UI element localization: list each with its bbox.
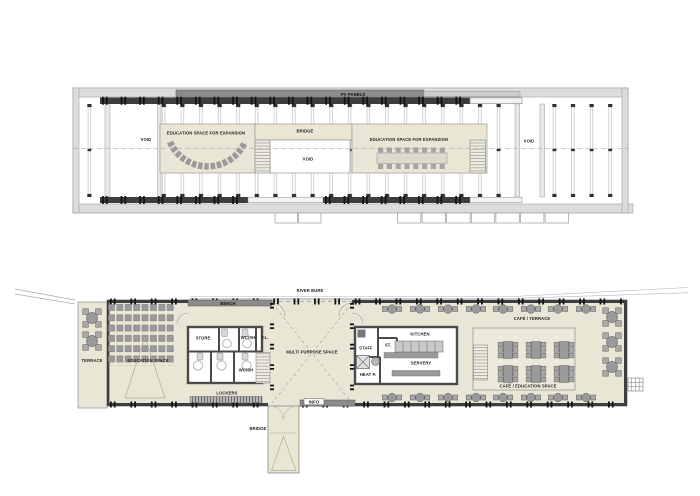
- upper-void-right-area: [519, 104, 540, 197]
- upper-void-left-area: [110, 104, 158, 197]
- st-label: ST.: [385, 343, 391, 348]
- bridge-label: BRIDGE: [250, 426, 267, 431]
- store-label: STORE: [196, 336, 211, 341]
- lower-floor-plan: RIVER BURE TERRACE BENCH EDUCATION SPACE: [15, 288, 688, 474]
- classroom-desks: [108, 304, 175, 366]
- cl-label: CL.: [261, 335, 268, 340]
- terrace-label: TERRACE: [82, 358, 103, 363]
- upper-bridge-label: BRIDGE: [297, 129, 314, 134]
- upper-void-right-label: VOID: [524, 139, 535, 144]
- upper-stair-left: [255, 140, 270, 173]
- wc-sh-top-label: WC/SH: [241, 335, 255, 340]
- floor-plan-sheet: PV PANELS: [0, 0, 700, 496]
- info-label: INFO: [309, 400, 320, 405]
- upper-education-right-label: EDUCATION SPACE FOR EXPANSION: [370, 137, 448, 142]
- bench-label: BENCH: [220, 301, 235, 306]
- upper-void-left-label: VOID: [141, 137, 152, 142]
- servery-label: SERVERY: [411, 361, 432, 366]
- upper-void-center-label: VOID: [303, 157, 314, 162]
- wc-sh-bottom-label: WC/SH: [239, 368, 253, 373]
- pv-panels-label: PV PANELS: [341, 92, 365, 97]
- river-steps: [628, 378, 643, 391]
- cafe-education-label: CAFÉ / EDUCATION SPACE: [500, 384, 557, 389]
- pv-panels-band: [176, 90, 424, 98]
- multi-purpose-label: MULTI PURPOSE SPACE: [286, 350, 337, 355]
- wc-block: STORE WC/SH WC/SH: [188, 327, 262, 383]
- staff-label: STAFF: [359, 346, 373, 351]
- floor-plan-drawing: PV PANELS: [0, 0, 700, 496]
- kitchen-label: KITCHEN: [410, 332, 429, 337]
- cafe-terrace-label: CAFÉ / TERRACE: [514, 316, 551, 321]
- stair-cafe: [474, 345, 488, 380]
- upper-floor-plan: PV PANELS: [73, 88, 633, 223]
- upper-bottom-rail: [73, 204, 633, 213]
- bridge-corridor: [268, 406, 299, 473]
- stair-wc: [256, 353, 270, 384]
- north-wall: [107, 300, 625, 303]
- lockers: [190, 397, 262, 403]
- upper-stair-right: [470, 140, 486, 173]
- kitchen-block: STAFF ST. KITCHEN SERVERY HEAT P.: [355, 327, 457, 384]
- upper-north-wall: [100, 98, 470, 105]
- heat-p-label: HEAT P.: [360, 372, 376, 377]
- lockers-label: LOCKERS: [216, 391, 237, 396]
- education-space-label: EDUCATION SPACE: [127, 358, 168, 363]
- upper-south-annexes: [275, 213, 569, 223]
- river-label: RIVER BURE: [297, 288, 324, 293]
- upper-education-left-label: EDUCATION SPACE FOR EXPANSION: [167, 131, 245, 136]
